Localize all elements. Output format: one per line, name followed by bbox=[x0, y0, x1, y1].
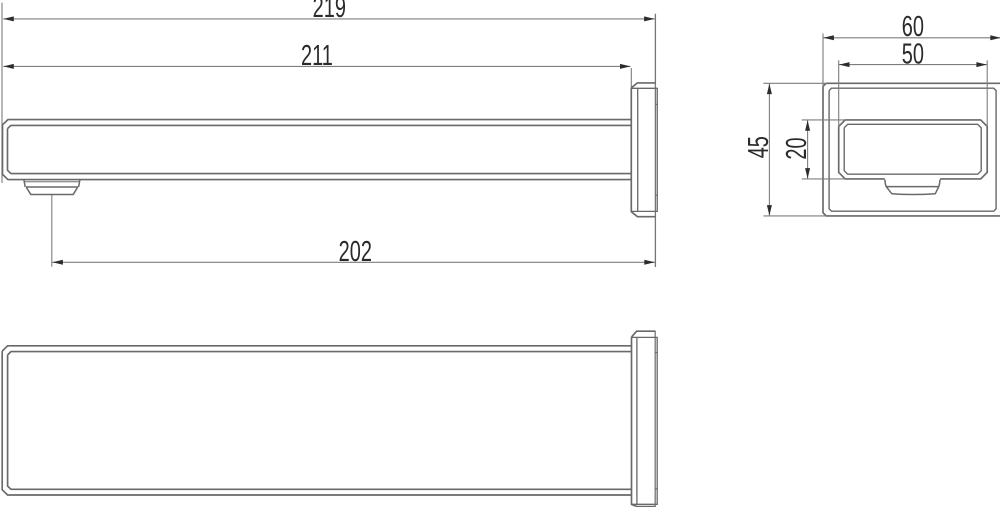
svg-text:202: 202 bbox=[339, 237, 372, 268]
svg-text:211: 211 bbox=[301, 41, 333, 72]
svg-text:20: 20 bbox=[782, 137, 813, 159]
svg-text:219: 219 bbox=[313, 0, 346, 24]
svg-text:50: 50 bbox=[902, 39, 924, 70]
svg-text:45: 45 bbox=[744, 136, 775, 158]
